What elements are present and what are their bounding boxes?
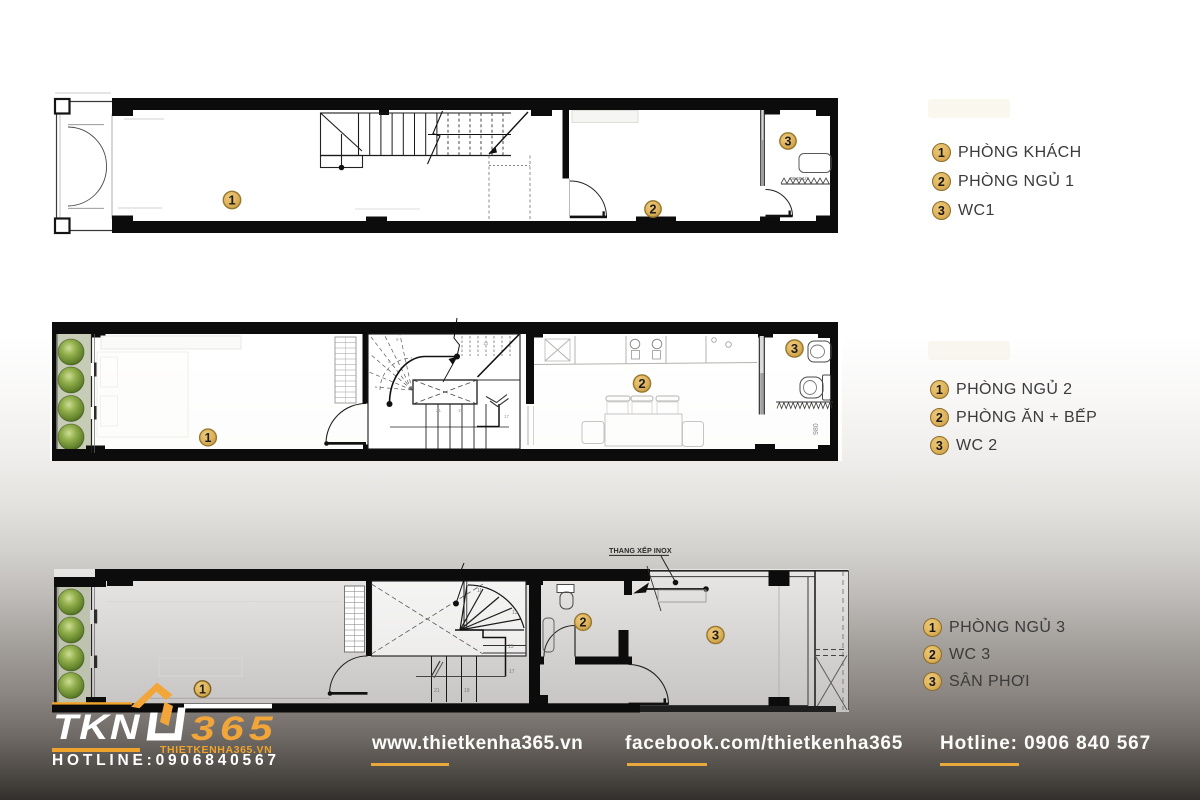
svg-text:THANG XẾP INOX: THANG XẾP INOX	[609, 545, 672, 555]
svg-text:15: 15	[508, 644, 514, 650]
svg-text:11: 11	[477, 588, 482, 594]
svg-text:17: 17	[504, 414, 510, 419]
svg-text:3: 3	[791, 341, 798, 356]
svg-text:13: 13	[483, 341, 489, 346]
svg-text:17: 17	[509, 669, 515, 675]
svg-text:21: 21	[434, 688, 440, 694]
svg-text:3: 3	[785, 134, 792, 148]
svg-text:13: 13	[512, 610, 518, 616]
svg-text:2: 2	[638, 376, 645, 391]
svg-text:3: 3	[712, 628, 719, 643]
svg-text:980: 980	[813, 423, 820, 435]
svg-text:19: 19	[464, 688, 470, 694]
svg-text:2: 2	[650, 202, 657, 216]
svg-text:1: 1	[228, 193, 235, 208]
svg-text:1: 1	[205, 431, 212, 445]
svg-text:08 40 1/2: 08 40 1/2	[790, 176, 809, 181]
svg-text:1: 1	[199, 682, 206, 696]
svg-text:2: 2	[580, 616, 587, 630]
svg-text:21: 21	[436, 408, 442, 413]
svg-text:19: 19	[458, 408, 464, 413]
